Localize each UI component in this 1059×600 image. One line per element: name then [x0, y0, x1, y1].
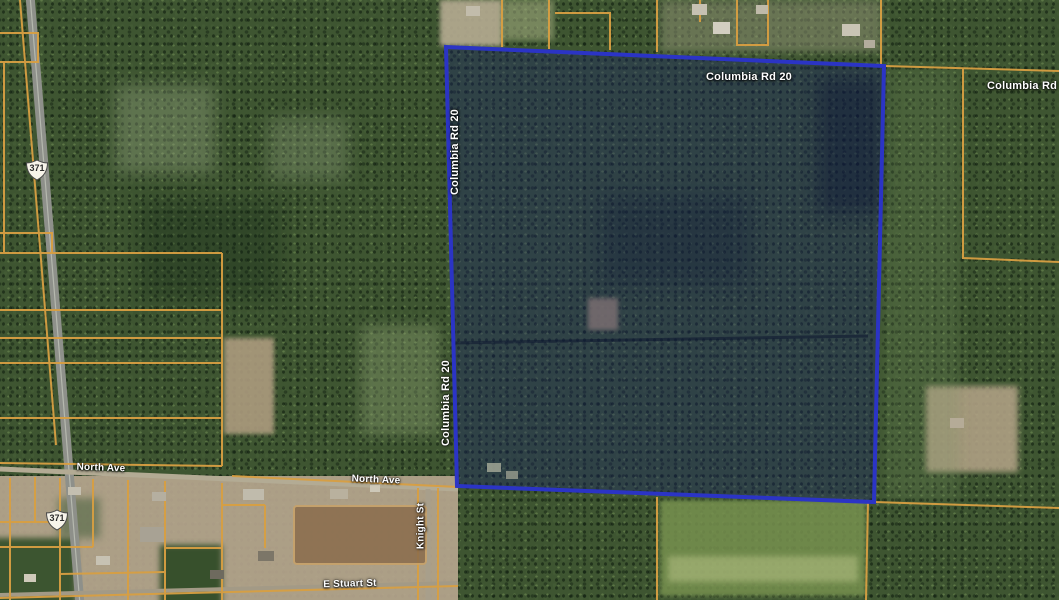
parcel-line — [866, 502, 868, 600]
building — [756, 5, 768, 14]
parcel-line — [884, 66, 1059, 71]
building — [140, 527, 164, 542]
us-371-centerline — [30, 0, 80, 600]
e-stuart-st-road — [0, 583, 458, 595]
building — [692, 4, 707, 15]
building — [24, 574, 36, 582]
building — [68, 487, 81, 495]
parcel-line — [0, 233, 52, 253]
building — [258, 551, 274, 561]
building — [864, 40, 875, 48]
parcel-line — [0, 463, 222, 466]
building — [713, 22, 730, 34]
map-overlay — [0, 0, 1059, 600]
dirt-arena — [294, 506, 426, 564]
building — [210, 570, 224, 579]
parcel-line — [874, 502, 1059, 508]
building — [243, 489, 264, 500]
building — [506, 471, 518, 479]
building — [487, 463, 501, 472]
building — [96, 556, 110, 565]
building — [152, 492, 166, 501]
parcel-line — [555, 13, 610, 50]
satellite-map[interactable]: Columbia Rd 20 Columbia Rd 20 Columbia R… — [0, 0, 1059, 600]
building — [950, 418, 964, 428]
building — [330, 489, 348, 499]
building — [370, 485, 380, 492]
building — [842, 24, 860, 36]
parcel-line — [963, 69, 1059, 262]
building — [466, 6, 480, 16]
selected-parcel-boundary[interactable] — [446, 47, 884, 502]
